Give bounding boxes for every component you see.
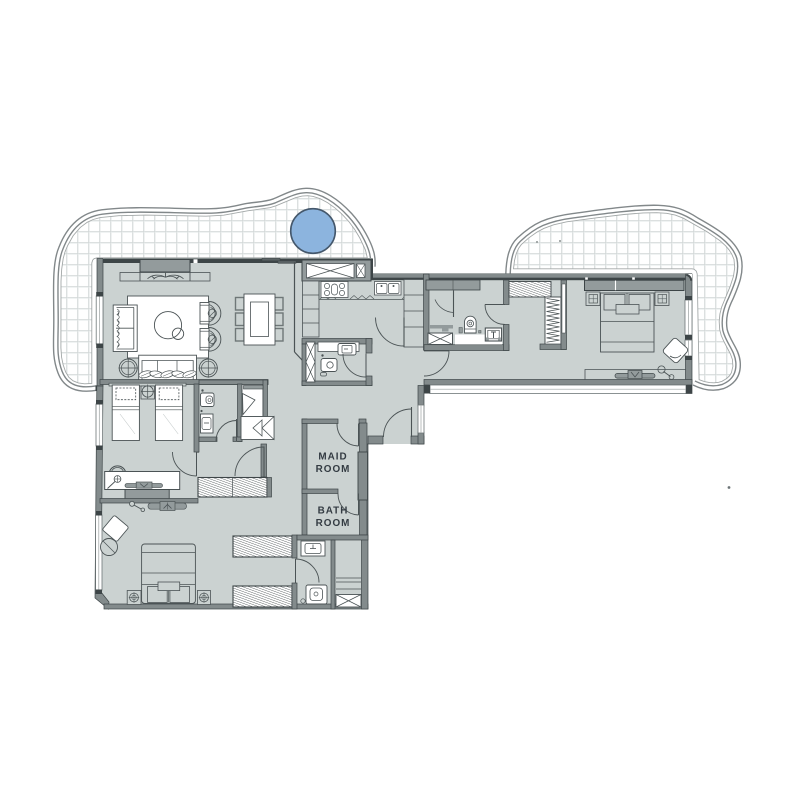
svg-text:BATH: BATH [318,506,349,517]
svg-text:ROOM: ROOM [316,464,351,475]
svg-text:MAID: MAID [318,452,347,463]
svg-text:ROOM: ROOM [316,518,351,529]
